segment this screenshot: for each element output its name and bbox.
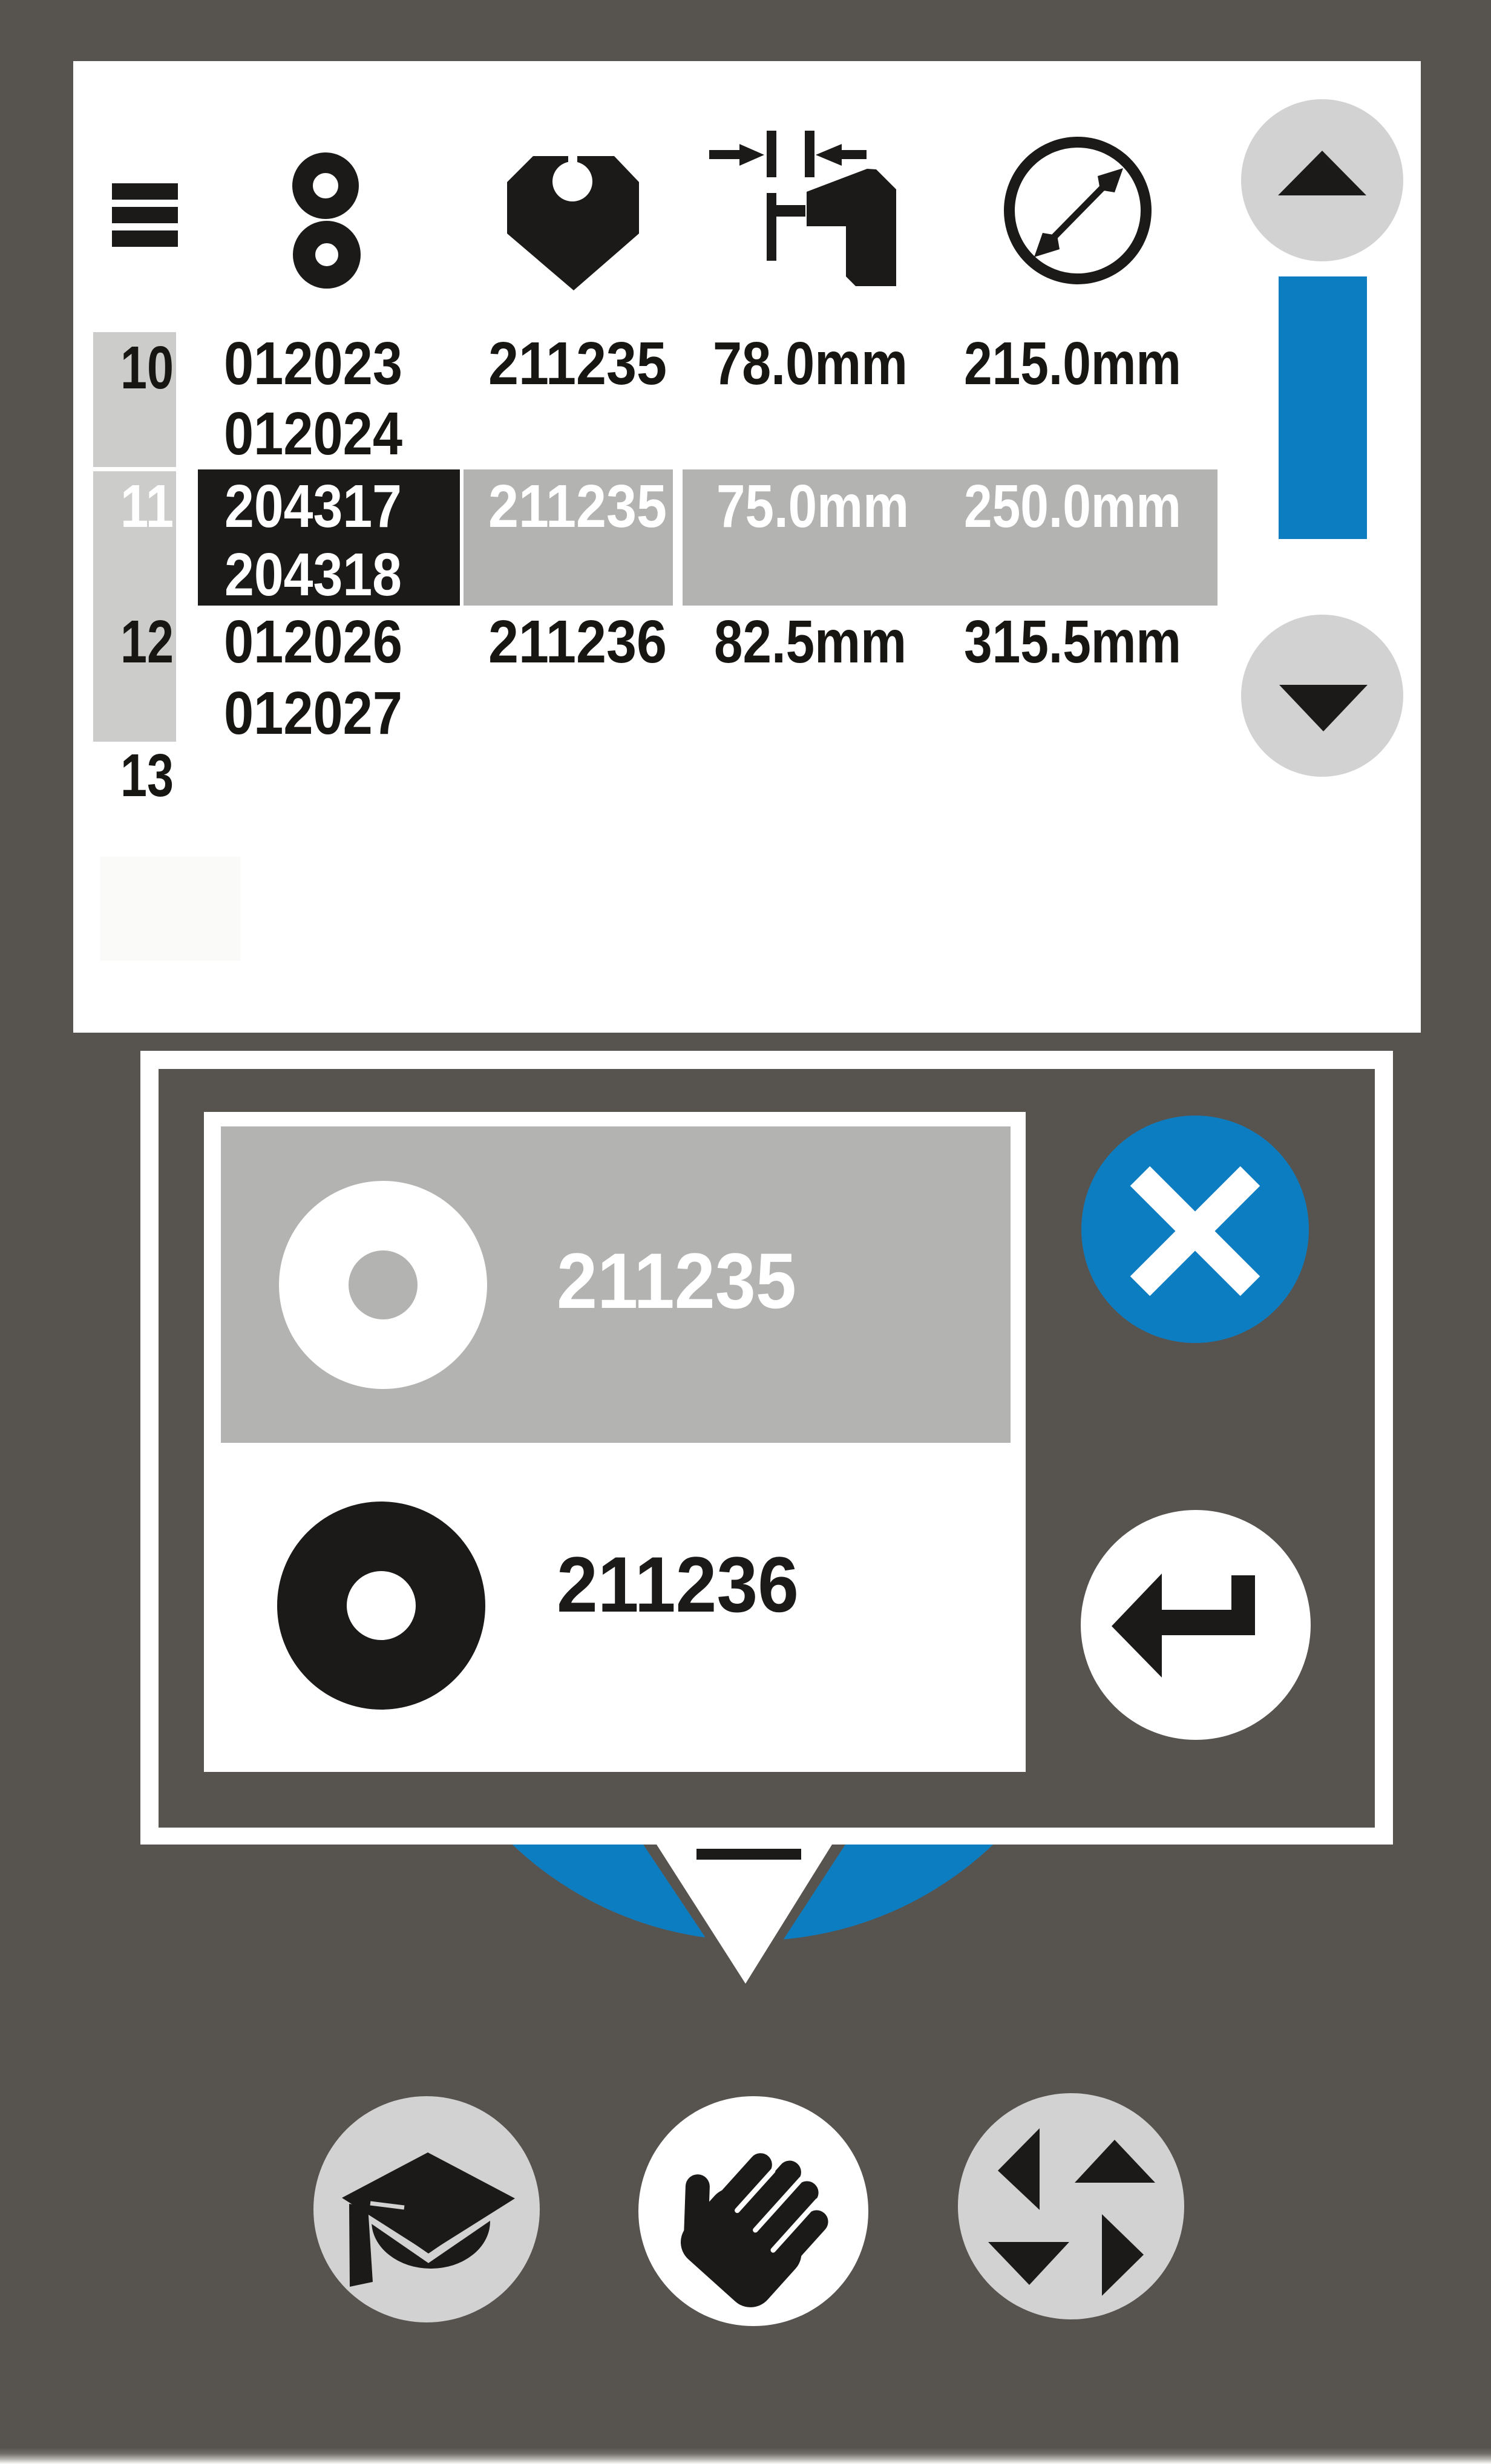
svg-text:204318: 204318 <box>224 541 402 609</box>
svg-text:211235: 211235 <box>557 1237 796 1325</box>
svg-text:315.5mm: 315.5mm <box>964 608 1181 676</box>
svg-text:211235: 211235 <box>488 330 667 397</box>
svg-text:012023: 012023 <box>224 330 402 397</box>
svg-text:211236: 211236 <box>557 1540 799 1629</box>
svg-text:13: 13 <box>120 742 174 809</box>
svg-text:215.0mm: 215.0mm <box>964 330 1181 397</box>
svg-text:12: 12 <box>120 608 174 676</box>
svg-text:012027: 012027 <box>224 679 402 747</box>
svg-text:012024: 012024 <box>224 400 402 468</box>
svg-text:250.0mm: 250.0mm <box>964 472 1181 540</box>
svg-text:78.0mm: 78.0mm <box>713 330 908 397</box>
svg-text:012026: 012026 <box>224 608 402 676</box>
svg-text:204317: 204317 <box>224 472 402 540</box>
svg-text:82.5mm: 82.5mm <box>714 608 906 676</box>
svg-text:11: 11 <box>120 472 174 540</box>
svg-text:75.0mm: 75.0mm <box>716 472 909 540</box>
svg-text:211235: 211235 <box>488 472 667 540</box>
svg-text:10: 10 <box>120 334 174 402</box>
svg-text:211236: 211236 <box>488 608 667 676</box>
